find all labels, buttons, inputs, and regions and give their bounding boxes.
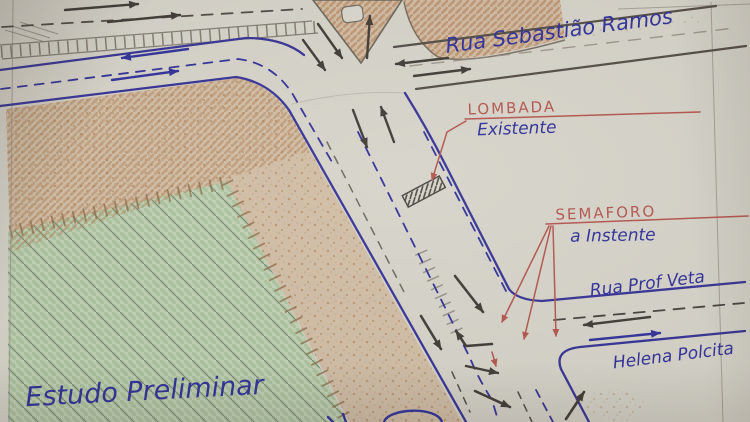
arrow-prof-veta-east-blue — [590, 333, 660, 340]
small-building-footprint — [341, 5, 364, 24]
arrow-bottom-southeast — [475, 391, 510, 407]
annotation-semaforo-label: SEMAFORO — [555, 202, 656, 224]
arrow-main-down-2 — [455, 276, 483, 312]
main-road-east-dashes — [424, 132, 506, 291]
intersection-guide — [292, 92, 404, 104]
street-label-prof-veta-line2: Helena Polcita — [612, 339, 735, 374]
arrow-into-junction-2 — [303, 40, 325, 70]
arrow-east-top-1 — [65, 4, 138, 10]
sketch-photo: Rua Sebastião Ramos LOMBADA Existente SE… — [0, 0, 750, 422]
annotation-lombada-note: Existente — [477, 118, 557, 141]
annotation-lombada-label: LOMBADA — [467, 97, 556, 118]
semaforo-leader-2 — [524, 226, 551, 339]
arrow-prof-veta-west — [584, 317, 650, 325]
red-mark-small — [492, 352, 496, 366]
arrow-main-down-1 — [353, 110, 367, 147]
speed-bump-symbol — [402, 176, 445, 207]
annotation-semaforo-note: a Instente — [570, 225, 656, 246]
speckle-patch-bottom-right — [585, 389, 645, 421]
arrow-east-blue — [112, 71, 178, 80]
arrow-sebastiao-east — [414, 69, 470, 76]
arrow-junction-right — [466, 366, 498, 373]
lower-leg-dashes-blue — [536, 390, 553, 422]
arrow-main-up — [381, 107, 394, 142]
lower-leg-dashes-black — [518, 392, 532, 422]
traffic-sketch-canvas: Rua Sebastião Ramos LOMBADA Existente SE… — [0, 0, 750, 422]
bottom-dashes-black — [452, 372, 470, 412]
semaforo-leader-1 — [502, 226, 549, 322]
corner-island-triangle — [313, 0, 402, 63]
street-label-prof-veta-line1: Rua Prof Veta — [589, 267, 706, 301]
arrow-left-turn — [456, 331, 492, 346]
arrow-main-down-3 — [421, 316, 441, 349]
arrow-east-top-2 — [108, 15, 180, 22]
